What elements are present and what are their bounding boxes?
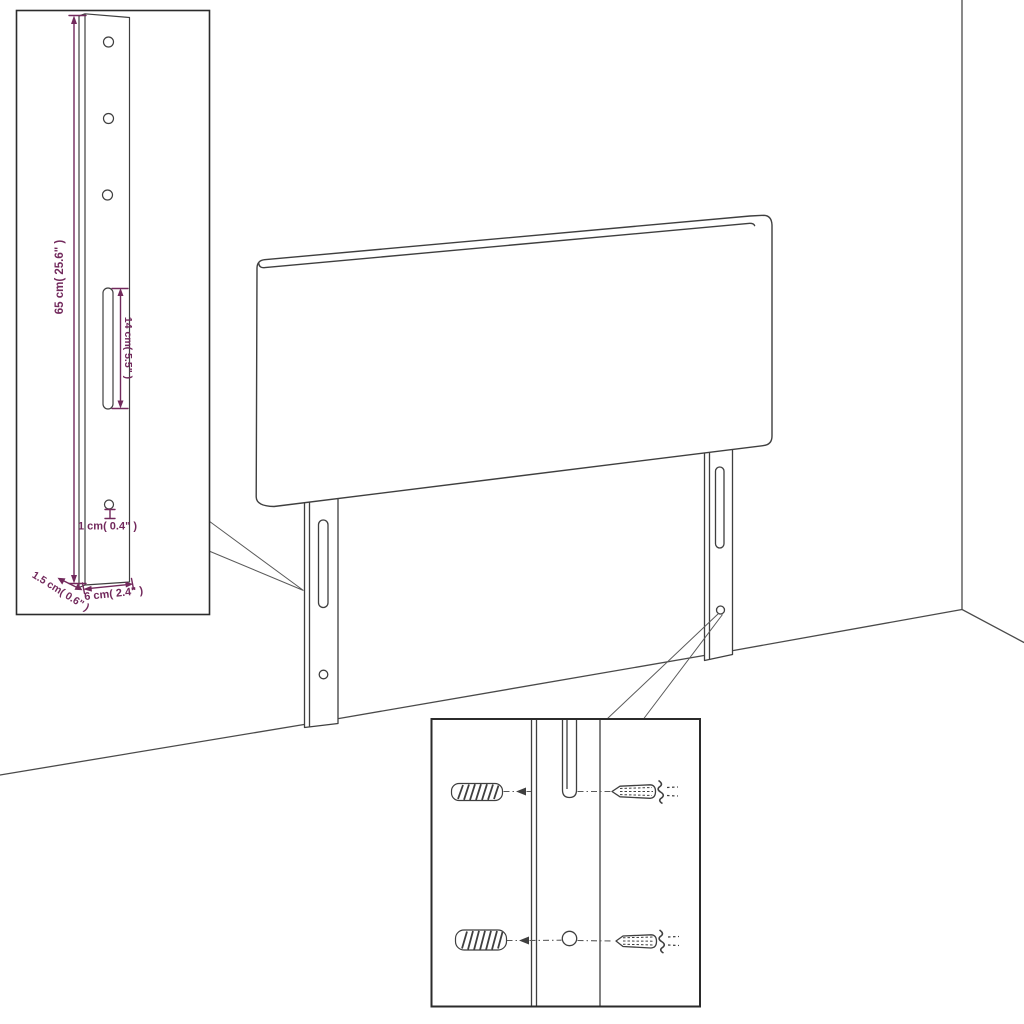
dim-height-label: 65 cm( 25.6" ) <box>54 240 66 315</box>
mounting-detail-inset <box>432 719 701 1007</box>
callout-lines <box>209 521 723 719</box>
mounting-detail-box <box>432 719 701 1007</box>
product-diagram-page: 65 cm( 25.6" ) 14 cm( 5.5" ) 1 cm( 0.4" … <box>0 0 1024 1024</box>
dim-slot-label: 14 cm( 5.5" ) <box>122 317 134 379</box>
right-leg-hole <box>717 606 725 614</box>
headboard-right-leg <box>705 437 733 661</box>
leg-detail-inset: 65 cm( 25.6" ) 14 cm( 5.5" ) 1 cm( 0.4" … <box>17 11 210 615</box>
headboard-dimension-diagram: 65 cm( 25.6" ) 14 cm( 5.5" ) 1 cm( 0.4" … <box>0 0 1024 1024</box>
left-leg-hole <box>319 670 328 679</box>
left-leg-slot <box>319 520 329 608</box>
headboard-panel <box>256 215 772 506</box>
right-leg-slot <box>716 467 725 548</box>
wall-corner-line <box>962 0 1024 643</box>
headboard-left-leg <box>305 487 339 728</box>
callout-left-inset-to-leg <box>209 521 304 591</box>
dim-hole-label: 1 cm( 0.4" ) <box>78 521 137 533</box>
